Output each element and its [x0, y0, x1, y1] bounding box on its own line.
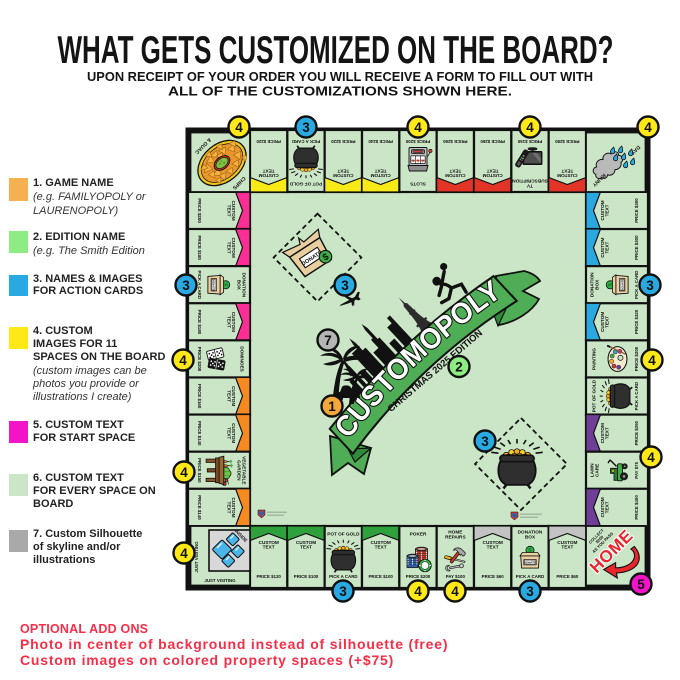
svg-text:PRICE $220: PRICE $220 — [256, 139, 281, 144]
svg-text:TEXT: TEXT — [263, 169, 275, 174]
svg-text:3: 3 — [481, 434, 489, 449]
svg-text:TEXT: TEXT — [227, 205, 232, 217]
svg-text:TEXT: TEXT — [605, 316, 610, 328]
svg-text:TEXT: TEXT — [487, 169, 499, 174]
svg-text:TEXT: TEXT — [227, 390, 232, 402]
svg-text:3: 3 — [182, 278, 190, 293]
svg-text:PRICE $200: PRICE $200 — [197, 347, 202, 372]
svg-text:SLOTS: SLOTS — [410, 182, 426, 187]
svg-text:3: 3 — [339, 584, 347, 599]
svg-text:3: 3 — [341, 278, 349, 293]
svg-text:PICK A CARD: PICK A CARD — [292, 139, 320, 144]
svg-text:4: 4 — [526, 120, 534, 135]
svg-text:PRICE $260: PRICE $260 — [480, 139, 505, 144]
svg-text:4: 4 — [179, 353, 187, 368]
svg-text:PRICE $180: PRICE $180 — [197, 310, 202, 335]
svg-text:4: 4 — [648, 353, 656, 368]
svg-text:PRICE $280: PRICE $280 — [555, 139, 580, 144]
svg-text:DONATE: DONATE — [620, 279, 624, 291]
svg-text:7: 7 — [324, 333, 332, 348]
svg-text:PRICE $200: PRICE $200 — [634, 346, 639, 371]
svg-text:CARE: CARE — [594, 464, 599, 477]
svg-text:3: 3 — [646, 278, 654, 293]
svg-text:DONATE: DONATE — [524, 560, 536, 564]
svg-text:DONATE: DONATE — [212, 279, 216, 291]
svg-text:TEXT: TEXT — [561, 545, 573, 550]
svg-text:4: 4 — [451, 584, 459, 599]
svg-text:4: 4 — [647, 450, 655, 465]
svg-text:3: 3 — [526, 584, 534, 599]
svg-text:PRICE $100: PRICE $100 — [368, 574, 393, 579]
svg-text:PICK A CARD: PICK A CARD — [634, 271, 639, 299]
svg-text:BOX: BOX — [237, 280, 242, 291]
svg-text:PAINTING: PAINTING — [592, 348, 597, 370]
svg-text:TEXT: TEXT — [605, 501, 610, 513]
svg-text:PRICE $300: PRICE $300 — [634, 235, 639, 260]
svg-text:PRICE $60: PRICE $60 — [482, 574, 505, 579]
svg-text:4: 4 — [180, 546, 188, 561]
svg-text:TEXT: TEXT — [263, 545, 275, 550]
svg-text:TEXT: TEXT — [227, 316, 232, 328]
svg-text:GARDEN: GARDEN — [237, 460, 242, 481]
svg-text:PICK A CARD: PICK A CARD — [634, 382, 639, 410]
svg-text:PRICE $200: PRICE $200 — [197, 198, 202, 223]
svg-text:PRICE $100: PRICE $100 — [294, 574, 319, 579]
svg-text:PRICE $350: PRICE $350 — [634, 420, 639, 445]
svg-text:PRICE $260: PRICE $260 — [443, 139, 468, 144]
svg-text:PRICE $160: PRICE $160 — [197, 384, 202, 409]
svg-text:JUST VISITING: JUST VISITING — [204, 578, 236, 583]
svg-text:PICK A CARD: PICK A CARD — [516, 574, 544, 579]
svg-text:PRICE $120: PRICE $120 — [256, 574, 281, 579]
svg-text:TEXT: TEXT — [487, 545, 499, 550]
svg-text:DOMINOES: DOMINOES — [240, 346, 245, 372]
svg-text:TEXT: TEXT — [227, 242, 232, 254]
svg-text:PRICE $200: PRICE $200 — [406, 574, 431, 579]
svg-text:POT OF GOLD: POT OF GOLD — [289, 182, 322, 187]
svg-text:TEXT: TEXT — [227, 427, 232, 439]
svg-text:TEXT: TEXT — [375, 169, 387, 174]
svg-text:2: 2 — [455, 359, 463, 374]
svg-text:TEXT: TEXT — [227, 501, 232, 513]
svg-text:PRICE $240: PRICE $240 — [368, 139, 393, 144]
svg-text:5: 5 — [637, 577, 645, 592]
svg-text:PRICE $150: PRICE $150 — [517, 139, 542, 144]
svg-text:TEXT: TEXT — [605, 204, 610, 216]
svg-text:PRICE $180: PRICE $180 — [197, 235, 202, 260]
svg-text:PRICE $140: PRICE $140 — [197, 495, 202, 520]
svg-text:PRICE $220: PRICE $220 — [331, 139, 356, 144]
svg-text:POKER: POKER — [410, 532, 427, 537]
svg-text:PICK A CARD: PICK A CARD — [329, 574, 357, 579]
svg-text:SUBSCRIPTION: SUBSCRIPTION — [512, 179, 548, 184]
svg-text:POT OF GOLD: POT OF GOLD — [327, 532, 360, 537]
svg-text:BOX: BOX — [594, 279, 599, 290]
svg-text:PICK A CARD: PICK A CARD — [197, 271, 202, 299]
svg-text:BOX: BOX — [525, 534, 536, 539]
svg-text:1: 1 — [328, 399, 336, 414]
svg-text:TEXT: TEXT — [449, 169, 461, 174]
svg-text:POT OF GOLD: POT OF GOLD — [592, 379, 597, 412]
svg-text:TEXT: TEXT — [605, 427, 610, 439]
svg-text:PAY $75: PAY $75 — [634, 461, 639, 478]
svg-text:REPAIRS: REPAIRS — [445, 534, 466, 539]
svg-text:PRICE $140: PRICE $140 — [197, 421, 202, 446]
svg-text:PRICE $150: PRICE $150 — [197, 458, 202, 483]
svg-text:4: 4 — [180, 465, 188, 480]
svg-text:TEXT: TEXT — [300, 545, 312, 550]
svg-text:3: 3 — [302, 120, 310, 135]
svg-text:PAY $100: PAY $100 — [446, 574, 466, 579]
svg-text:4: 4 — [644, 120, 652, 135]
svg-text:PRICE $400: PRICE $400 — [634, 495, 639, 520]
svg-text:4: 4 — [414, 120, 422, 135]
svg-text:PRICE $200: PRICE $200 — [405, 139, 430, 144]
svg-text:PRICE $60: PRICE $60 — [556, 574, 579, 579]
svg-text:4: 4 — [414, 584, 422, 599]
svg-text:TEXT: TEXT — [337, 169, 349, 174]
svg-text:PRICE $300: PRICE $300 — [634, 198, 639, 223]
svg-text:TEXT: TEXT — [605, 242, 610, 254]
svg-text:4: 4 — [235, 120, 243, 135]
svg-text:PRICE $320: PRICE $320 — [634, 309, 639, 334]
svg-text:TEXT: TEXT — [375, 545, 387, 550]
svg-text:TEXT: TEXT — [561, 169, 573, 174]
